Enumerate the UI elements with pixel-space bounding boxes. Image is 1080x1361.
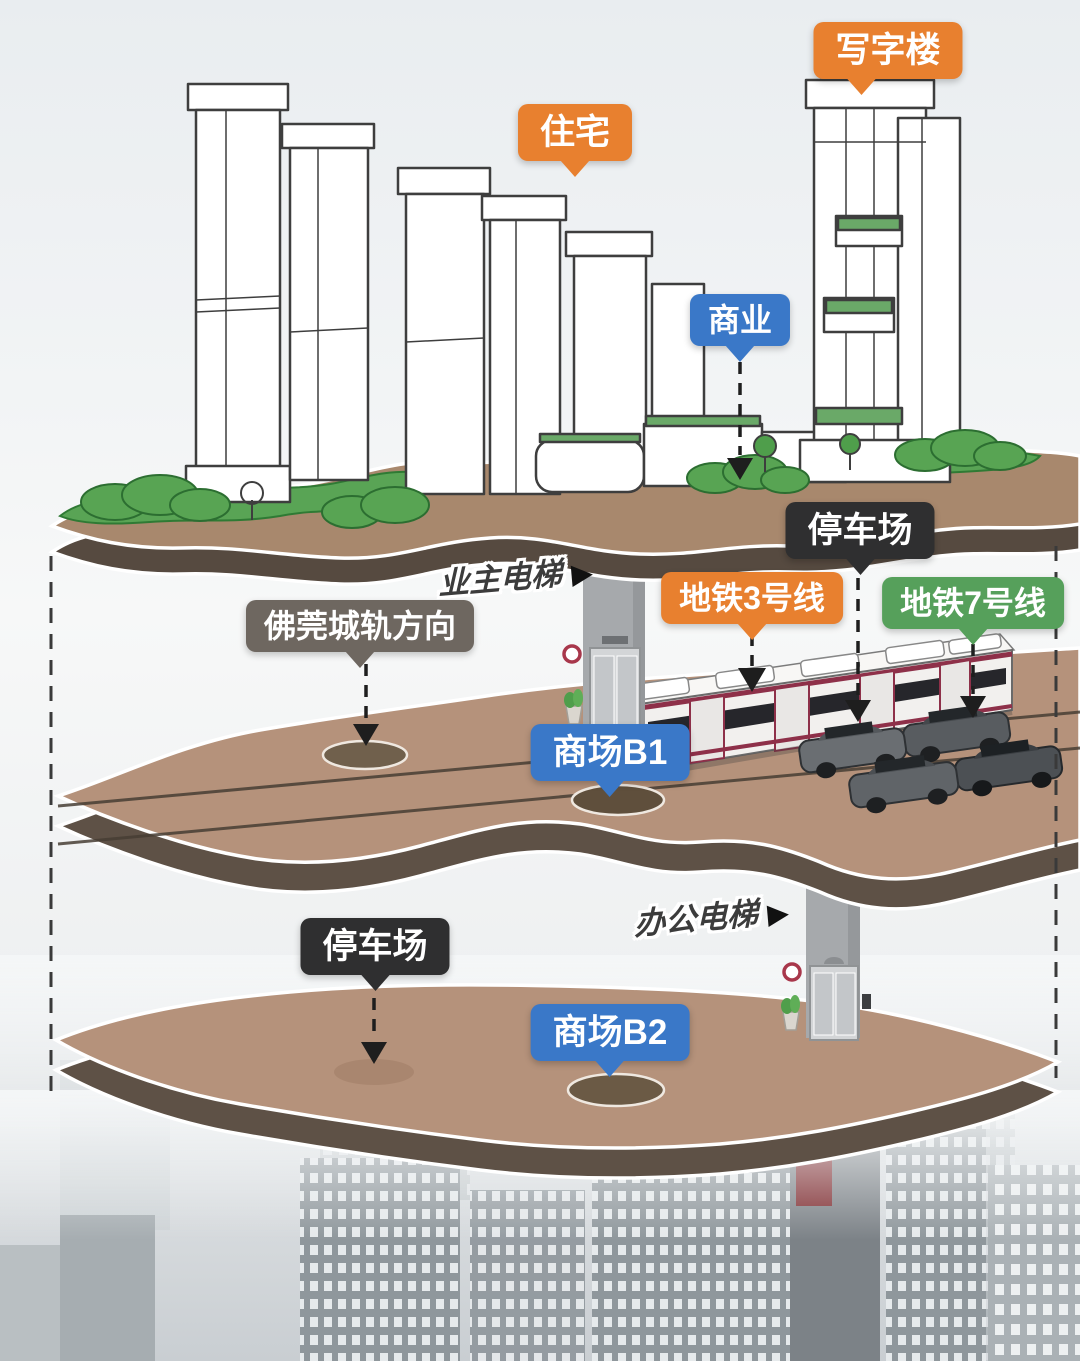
label-mall-b1: 商场B1 [531, 724, 690, 781]
arrow-right-icon: ▶ [571, 557, 594, 590]
label-intercity-rail-direction: 佛莞城轨方向 [246, 600, 474, 652]
label-metro-line-7: 地铁7号线 [882, 577, 1064, 629]
label-parking-b2: 停车场 [300, 918, 449, 975]
tower-residential [188, 84, 288, 110]
label-residential: 住宅 [518, 104, 632, 161]
wall-sign-icon [564, 646, 580, 662]
tower-residential [482, 196, 566, 220]
floor-hole-b2 [568, 1074, 664, 1106]
label-mall-b2: 商场B2 [531, 1004, 690, 1061]
transit-development-diagram: 写字楼 住宅 商业 停车场 地铁3号线 地铁7号线 佛莞城轨方向 业主电梯▶ 商… [0, 0, 1080, 1361]
label-parking-b1: 停车场 [785, 502, 934, 559]
scene-illustration [0, 0, 1080, 1361]
tower-residential [398, 168, 490, 194]
floor-hole-intercity [323, 741, 407, 769]
label-commercial: 商业 [690, 294, 790, 346]
label-office-tower: 写字楼 [813, 22, 962, 79]
arrow-right-icon: ▶ [767, 897, 790, 930]
label-metro-line-3: 地铁3号线 [661, 572, 843, 624]
wall-sign-icon [784, 964, 800, 980]
commercial-podium [536, 440, 644, 492]
tower-residential [566, 232, 652, 256]
call-button-panel [862, 994, 871, 1009]
tower-residential [282, 124, 374, 148]
